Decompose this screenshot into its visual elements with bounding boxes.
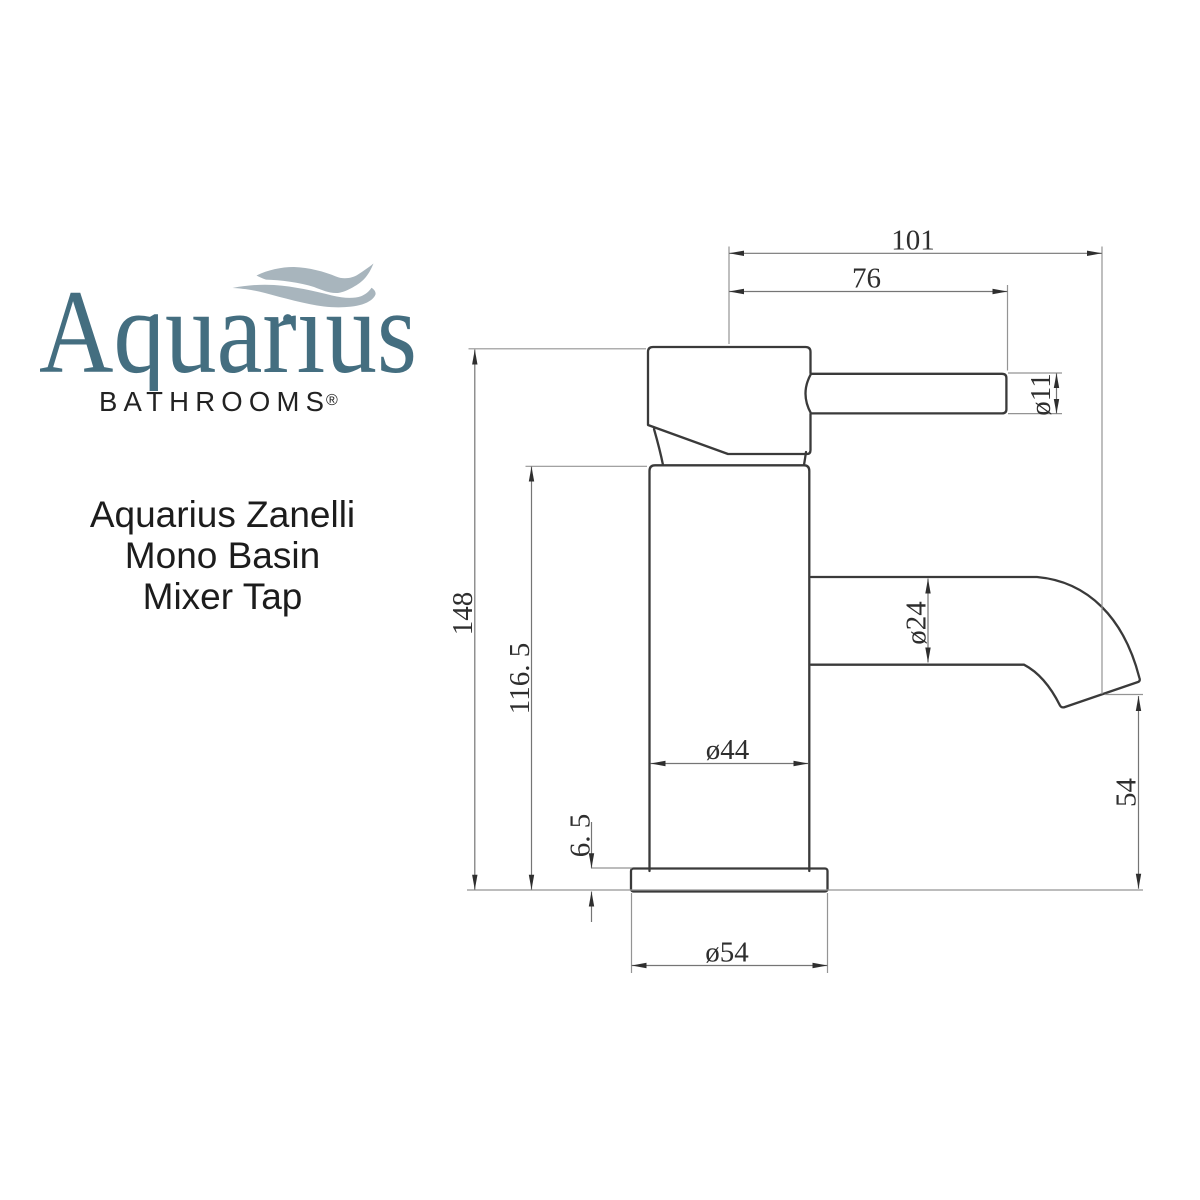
svg-text:Aquarius Zanelli: Aquarius Zanelli [90, 494, 355, 535]
svg-text:Mixer Tap: Mixer Tap [143, 576, 303, 617]
svg-text:ø24: ø24 [901, 601, 933, 645]
svg-text:®: ® [326, 392, 338, 409]
svg-text:Aquarıus: Aquarıus [39, 265, 417, 398]
svg-text:54: 54 [1111, 778, 1143, 808]
svg-text:148: 148 [447, 592, 479, 636]
svg-text:6. 5: 6. 5 [565, 814, 597, 858]
svg-text:ø44: ø44 [706, 734, 750, 766]
svg-text:ø11: ø11 [1025, 373, 1057, 415]
svg-text:116. 5: 116. 5 [504, 643, 536, 714]
svg-text:Mono Basin: Mono Basin [125, 535, 320, 576]
svg-text:BATHROOMS: BATHROOMS [99, 386, 324, 417]
svg-text:ø54: ø54 [705, 937, 749, 969]
svg-text:101: 101 [891, 225, 935, 257]
svg-text:76: 76 [852, 263, 881, 295]
